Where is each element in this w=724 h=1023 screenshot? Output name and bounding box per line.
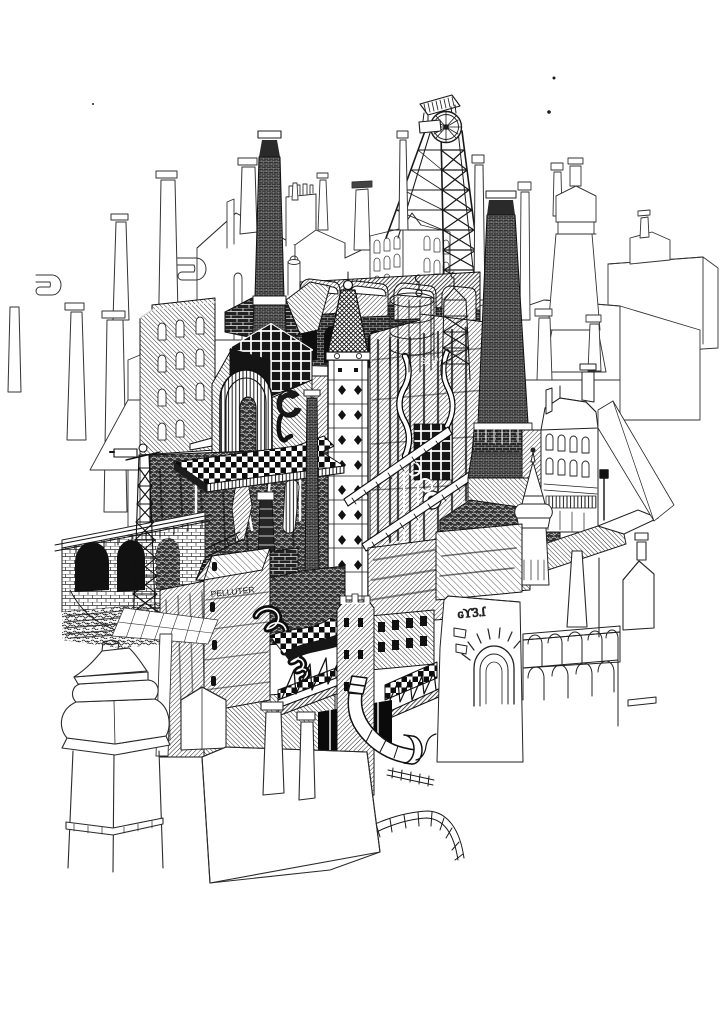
svg-text:STƤ: STƤ: [420, 356, 439, 366]
svg-text:ɢϒ3.ſ: ɢϒ3.ſ: [457, 605, 486, 621]
